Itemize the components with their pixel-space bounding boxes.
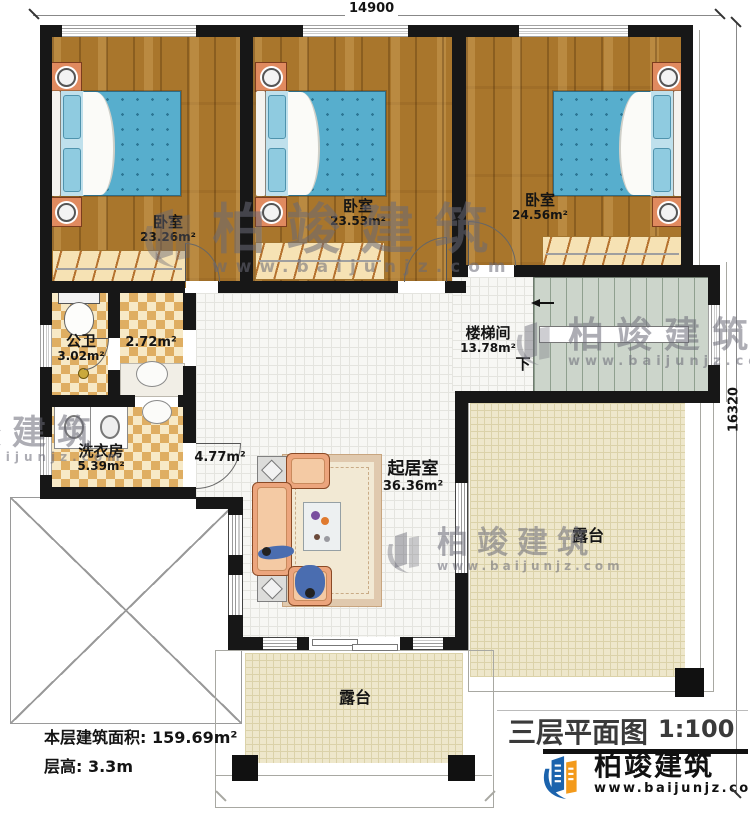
room-area: 13.78m² xyxy=(438,342,538,356)
wall-laundry-bottom xyxy=(40,487,196,499)
window-bedroom3 xyxy=(519,25,628,37)
wall-right-bed3 xyxy=(681,25,693,277)
wall-living-left-a xyxy=(228,497,243,515)
bed-blanket xyxy=(83,92,115,195)
column-terrace-bottom-left xyxy=(232,755,258,781)
toilet-bowl xyxy=(64,302,94,336)
sofa-main xyxy=(252,482,292,576)
room-area: 36.36m² xyxy=(358,480,468,495)
cup-decor xyxy=(314,534,320,540)
room-name: 卧室 xyxy=(118,214,218,231)
bed-bedroom3 xyxy=(552,90,684,197)
wall-bath-right-a xyxy=(183,293,196,330)
room-closet-floor xyxy=(120,293,183,363)
nightstand xyxy=(255,197,287,227)
wardrobe-bedroom2 xyxy=(255,242,385,280)
sliding-door-panel-2 xyxy=(352,644,398,651)
brand-website: www.baijunjz.com xyxy=(594,780,750,798)
wall-living-bottom-d xyxy=(443,637,467,650)
stairs-direction-line xyxy=(539,302,554,304)
label-closet: 2.72m² xyxy=(118,336,184,351)
wall-living-bottom-a xyxy=(228,637,263,650)
label-terrace-right: 露台 xyxy=(548,527,628,545)
bed-blanket xyxy=(288,92,320,195)
wall-living-left-c xyxy=(228,615,243,637)
eave-line-right xyxy=(699,30,700,266)
label-bedroom3: 卧室 24.56m² xyxy=(490,192,590,223)
plan-scale: 1:100 xyxy=(658,715,734,743)
bed-pillows xyxy=(61,91,84,196)
terrace-right-rail-line xyxy=(700,400,701,690)
side-table xyxy=(257,456,287,484)
side-table xyxy=(257,574,287,602)
wall-living-bottom-b xyxy=(297,637,309,650)
terrace-right-railing xyxy=(468,400,714,692)
room-area: 24.56m² xyxy=(490,209,590,223)
laundry-sink xyxy=(142,400,172,424)
wall-bath-closet-a xyxy=(108,293,120,338)
wall-bed3-bottom-b xyxy=(514,265,720,277)
wall-bath-laundry-a xyxy=(40,395,135,407)
room-name: 楼梯间 xyxy=(438,325,538,342)
person-head xyxy=(305,588,315,598)
room-name: 起居室 xyxy=(358,460,468,480)
room-area: 3.02m² xyxy=(46,350,116,364)
wall-bath-laundry-b xyxy=(178,395,183,407)
window-living-bottom-2 xyxy=(413,637,443,650)
bed-headboard xyxy=(51,91,61,196)
cup-decor xyxy=(324,536,330,542)
nightstand xyxy=(50,197,82,227)
room-name: 洗衣房 xyxy=(56,443,146,460)
window-laundry xyxy=(40,437,52,475)
room-name: 卧室 xyxy=(308,198,408,215)
terrace-bottom-railing xyxy=(215,650,494,808)
room-name: 公卫 xyxy=(46,333,116,350)
person-head xyxy=(262,547,271,556)
brand-block: 柏竣建筑 www.baijunjz.com xyxy=(536,752,750,800)
bed-headboard xyxy=(256,91,266,196)
window-bedroom2 xyxy=(303,25,408,37)
bed-mattress xyxy=(84,91,181,196)
room-area: 23.53m² xyxy=(308,215,408,229)
floor-height-text: 层高: 3.3m xyxy=(44,758,133,776)
floor-plan-canvas: 卧室 23.26m² 卧室 23.53m² 卧室 24.56m² 公卫 3.02… xyxy=(0,0,750,814)
wall-bed2-bottom-b xyxy=(445,281,466,293)
plan-title: 三层平面图 xyxy=(508,711,648,751)
nightstand xyxy=(652,62,684,92)
dimension-right-value: 16320 xyxy=(727,376,742,444)
room-name: 卧室 xyxy=(490,192,590,209)
armchair-top xyxy=(286,453,330,489)
bed-mattress xyxy=(553,91,650,196)
nightstand xyxy=(255,62,287,92)
window-living-left-2 xyxy=(228,575,243,615)
window-living-terrace xyxy=(455,483,468,573)
coffee-table xyxy=(303,502,341,551)
dimension-tick xyxy=(28,8,39,19)
bed-pillows xyxy=(266,91,289,196)
label-bedroom1: 卧室 23.26m² xyxy=(118,214,218,245)
bed-bedroom2 xyxy=(255,90,387,197)
roof-below-outline xyxy=(10,497,242,724)
wall-bed1-bed2 xyxy=(240,37,253,293)
wall-left xyxy=(40,25,52,499)
brand-name: 柏竣建筑 xyxy=(594,752,750,780)
bed-bedroom1 xyxy=(50,90,182,197)
label-corridor: 4.77m² xyxy=(192,451,248,466)
wall-bath-right-b xyxy=(183,366,196,443)
bed-pillows xyxy=(650,91,673,196)
wall-stair-bottom xyxy=(455,391,720,403)
wall-stair-right-a xyxy=(708,265,720,305)
wall-bed1-bottom-a xyxy=(40,281,185,293)
wall-bed2-bed3 xyxy=(452,37,466,277)
window-bedroom1 xyxy=(62,25,196,37)
room-area: 5.39m² xyxy=(56,460,146,474)
column-terrace-bottom-right xyxy=(448,755,475,781)
window-living-left-1 xyxy=(228,515,243,555)
wall-living-bottom-c xyxy=(400,637,413,650)
dimension-top-value: 14900 xyxy=(345,1,398,16)
dimension-tick xyxy=(714,8,725,19)
column-terrace-right xyxy=(675,668,704,697)
label-laundry: 洗衣房 5.39m² xyxy=(56,443,146,474)
flower-decor xyxy=(311,511,320,520)
floor-area-text: 本层建筑面积: 159.69m² xyxy=(44,729,237,747)
wall-bed2-bottom-a xyxy=(253,281,398,293)
label-bedroom2: 卧室 23.53m² xyxy=(308,198,408,229)
window-living-bottom-1 xyxy=(263,637,297,650)
room-area: 23.26m² xyxy=(118,231,218,245)
brand-logo-icon xyxy=(536,752,588,800)
label-living: 起居室 36.36m² xyxy=(358,460,468,494)
label-bathroom: 公卫 3.02m² xyxy=(46,333,116,364)
wall-bed1-bottom-b xyxy=(218,281,253,293)
vanity-sink xyxy=(136,361,168,387)
wall-bath-closet-b xyxy=(108,370,120,398)
wall-living-left-b xyxy=(228,555,243,575)
label-stairs-direction: 下 xyxy=(508,356,538,373)
nightstand xyxy=(652,197,684,227)
nightstand xyxy=(50,62,82,92)
stairs-handrail xyxy=(539,326,689,343)
label-terrace-bottom: 露台 xyxy=(315,689,395,707)
bed-blanket xyxy=(619,92,651,195)
label-stairwell: 楼梯间 13.78m² xyxy=(438,325,538,356)
window-stairwell xyxy=(708,305,720,365)
wall-bed3-bottom-a xyxy=(452,265,468,277)
bed-mattress xyxy=(289,91,386,196)
flower-decor xyxy=(321,517,329,525)
